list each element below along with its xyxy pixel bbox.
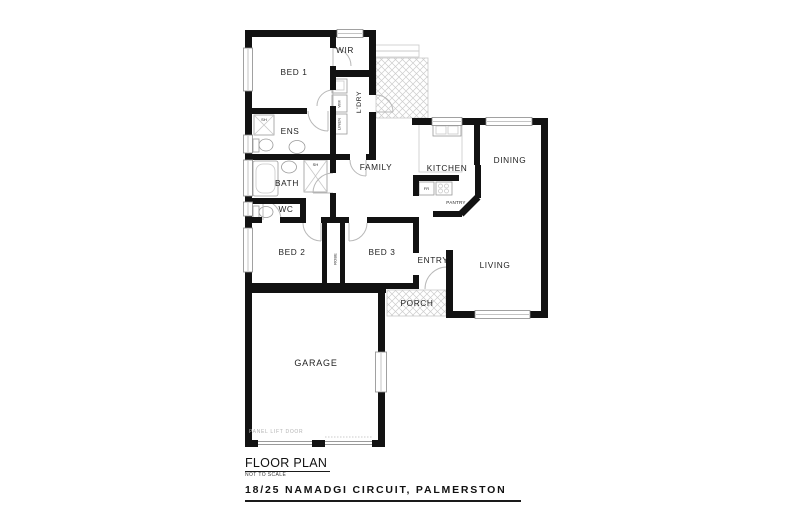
wc-toilet [259,207,273,218]
room-label-dining: DINING [494,155,527,165]
address-title: 18/25 NAMADGI CIRCUIT, PALMERSTON [245,484,506,496]
room-label-bed3: BED 3 [369,247,396,257]
bed2-door [303,223,321,241]
room-label-porch: PORCH [401,298,434,308]
floor-plan-page: BED 1 WIR L'DRY WM LINEN ENS SH BATH SH … [0,0,790,527]
ens-toilet [259,139,273,151]
floor-plan-drawing: BED 1 WIR L'DRY WM LINEN ENS SH BATH SH … [0,0,790,527]
ens-basin [289,141,305,154]
room-label-family: FAMILY [360,162,393,172]
bath-basin [282,161,297,173]
room-label-entry: ENTRY [418,255,449,265]
bed3-door [349,223,367,241]
bed1-door [317,90,333,106]
patio-hatch [376,58,428,118]
label-panel-lift-door: PANEL LIFT DOOR [249,429,303,435]
room-label-ldry: L'DRY [356,91,363,113]
room-label-bed2: BED 2 [279,247,306,257]
room-label-wir: WIR [336,45,354,55]
label-fridge: FR [424,186,430,191]
room-label-wc: WC [278,204,293,214]
cooktop [436,182,452,195]
room-label-kitchen: KITCHEN [427,163,468,173]
ens-door [308,111,328,131]
patio-step [374,45,419,51]
room-label-bath: BATH [275,178,299,188]
front-door [425,267,447,289]
label-linen: LINEN [337,118,342,130]
label-wm: WM [337,100,342,107]
room-label-living: LIVING [480,260,511,270]
address-underline [245,500,521,502]
wc-toilet-tank [253,206,259,218]
room-label-garage: GARAGE [294,358,337,368]
label-robe: ROBE [333,253,338,265]
label-ens-shower: SH [261,117,267,122]
ens-toilet-tank [253,139,259,152]
label-bath-shower: SH [313,162,319,167]
scale-note: NOT TO SCALE [245,472,286,478]
room-label-bed1: BED 1 [281,67,308,77]
room-label-ens: ENS [281,126,300,136]
page-title: FLOOR PLAN [245,456,330,472]
patio-step [374,51,419,57]
room-label-pantry: PANTRY [446,200,465,205]
